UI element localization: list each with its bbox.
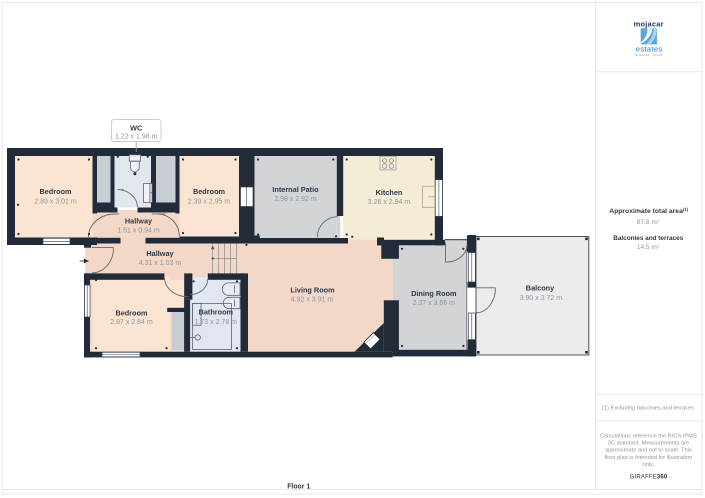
svg-text:14.5 m²: 14.5 m² bbox=[637, 244, 660, 251]
svg-text:2.98 x 2.92 m: 2.98 x 2.92 m bbox=[274, 196, 317, 203]
svg-text:1.22 x 1.98 m: 1.22 x 1.98 m bbox=[115, 134, 158, 141]
svg-text:Approximate total area(1): Approximate total area(1) bbox=[609, 207, 688, 215]
svg-text:Hallway: Hallway bbox=[125, 217, 153, 226]
svg-text:only.: only. bbox=[643, 462, 655, 468]
svg-text:1.51 x 0.94 m: 1.51 x 0.94 m bbox=[117, 228, 160, 235]
svg-text:GIRAFFE360: GIRAFFE360 bbox=[630, 473, 668, 480]
svg-text:mojacar: mojacar bbox=[634, 19, 664, 28]
svg-text:3.90 x 3.72 m: 3.90 x 3.72 m bbox=[520, 295, 563, 302]
svg-text:Floor 1: Floor 1 bbox=[287, 484, 310, 491]
svg-text:Living Room: Living Room bbox=[290, 286, 335, 295]
svg-text:Internal Patio: Internal Patio bbox=[272, 185, 319, 194]
svg-text:Hallway: Hallway bbox=[146, 249, 174, 258]
svg-text:2.39 x 2.95 m: 2.39 x 2.95 m bbox=[188, 199, 231, 206]
svg-text:1.73 x 2.78 m: 1.73 x 2.78 m bbox=[195, 319, 238, 326]
svg-text:4.92 x 3.91 m: 4.92 x 3.91 m bbox=[291, 297, 334, 304]
svg-text:floor plan is intended for ill: floor plan is intended for illustration bbox=[604, 455, 692, 461]
svg-text:WC: WC bbox=[130, 123, 143, 132]
svg-text:estates: estates bbox=[636, 45, 663, 54]
svg-text:Bedroom: Bedroom bbox=[115, 308, 148, 317]
svg-text:2.87 x 2.84 m: 2.87 x 2.84 m bbox=[110, 319, 153, 326]
svg-text:2.37 x 3.66 m: 2.37 x 3.66 m bbox=[413, 300, 456, 307]
svg-text:Bedroom: Bedroom bbox=[193, 187, 226, 196]
svg-text:Dining Room: Dining Room bbox=[411, 289, 457, 298]
svg-text:87.8 m²: 87.8 m² bbox=[637, 219, 660, 226]
svg-text:Calculations reference the RIC: Calculations reference the RICS IPMS bbox=[600, 434, 697, 440]
svg-text:Kitchen: Kitchen bbox=[376, 188, 403, 197]
svg-text:3C standard. Measurements are: 3C standard. Measurements are bbox=[608, 441, 690, 447]
svg-text:MOJACAR · SPAIN: MOJACAR · SPAIN bbox=[635, 53, 662, 57]
svg-text:(1) Excluding balconies and te: (1) Excluding balconies and terraces bbox=[602, 406, 694, 412]
svg-text:4.31 x 1.03 m: 4.31 x 1.03 m bbox=[139, 260, 182, 267]
svg-text:2.89 x 3.01 m: 2.89 x 3.01 m bbox=[34, 198, 77, 205]
svg-text:Bathroom: Bathroom bbox=[199, 307, 234, 316]
svg-text:3.26 x 2.94 m: 3.26 x 2.94 m bbox=[368, 199, 411, 206]
svg-text:Balconies and terraces: Balconies and terraces bbox=[613, 235, 683, 242]
svg-text:approximate and not to scale.: approximate and not to scale. This bbox=[605, 448, 692, 454]
svg-text:Bedroom: Bedroom bbox=[39, 187, 72, 196]
svg-text:Balcony: Balcony bbox=[526, 283, 555, 292]
